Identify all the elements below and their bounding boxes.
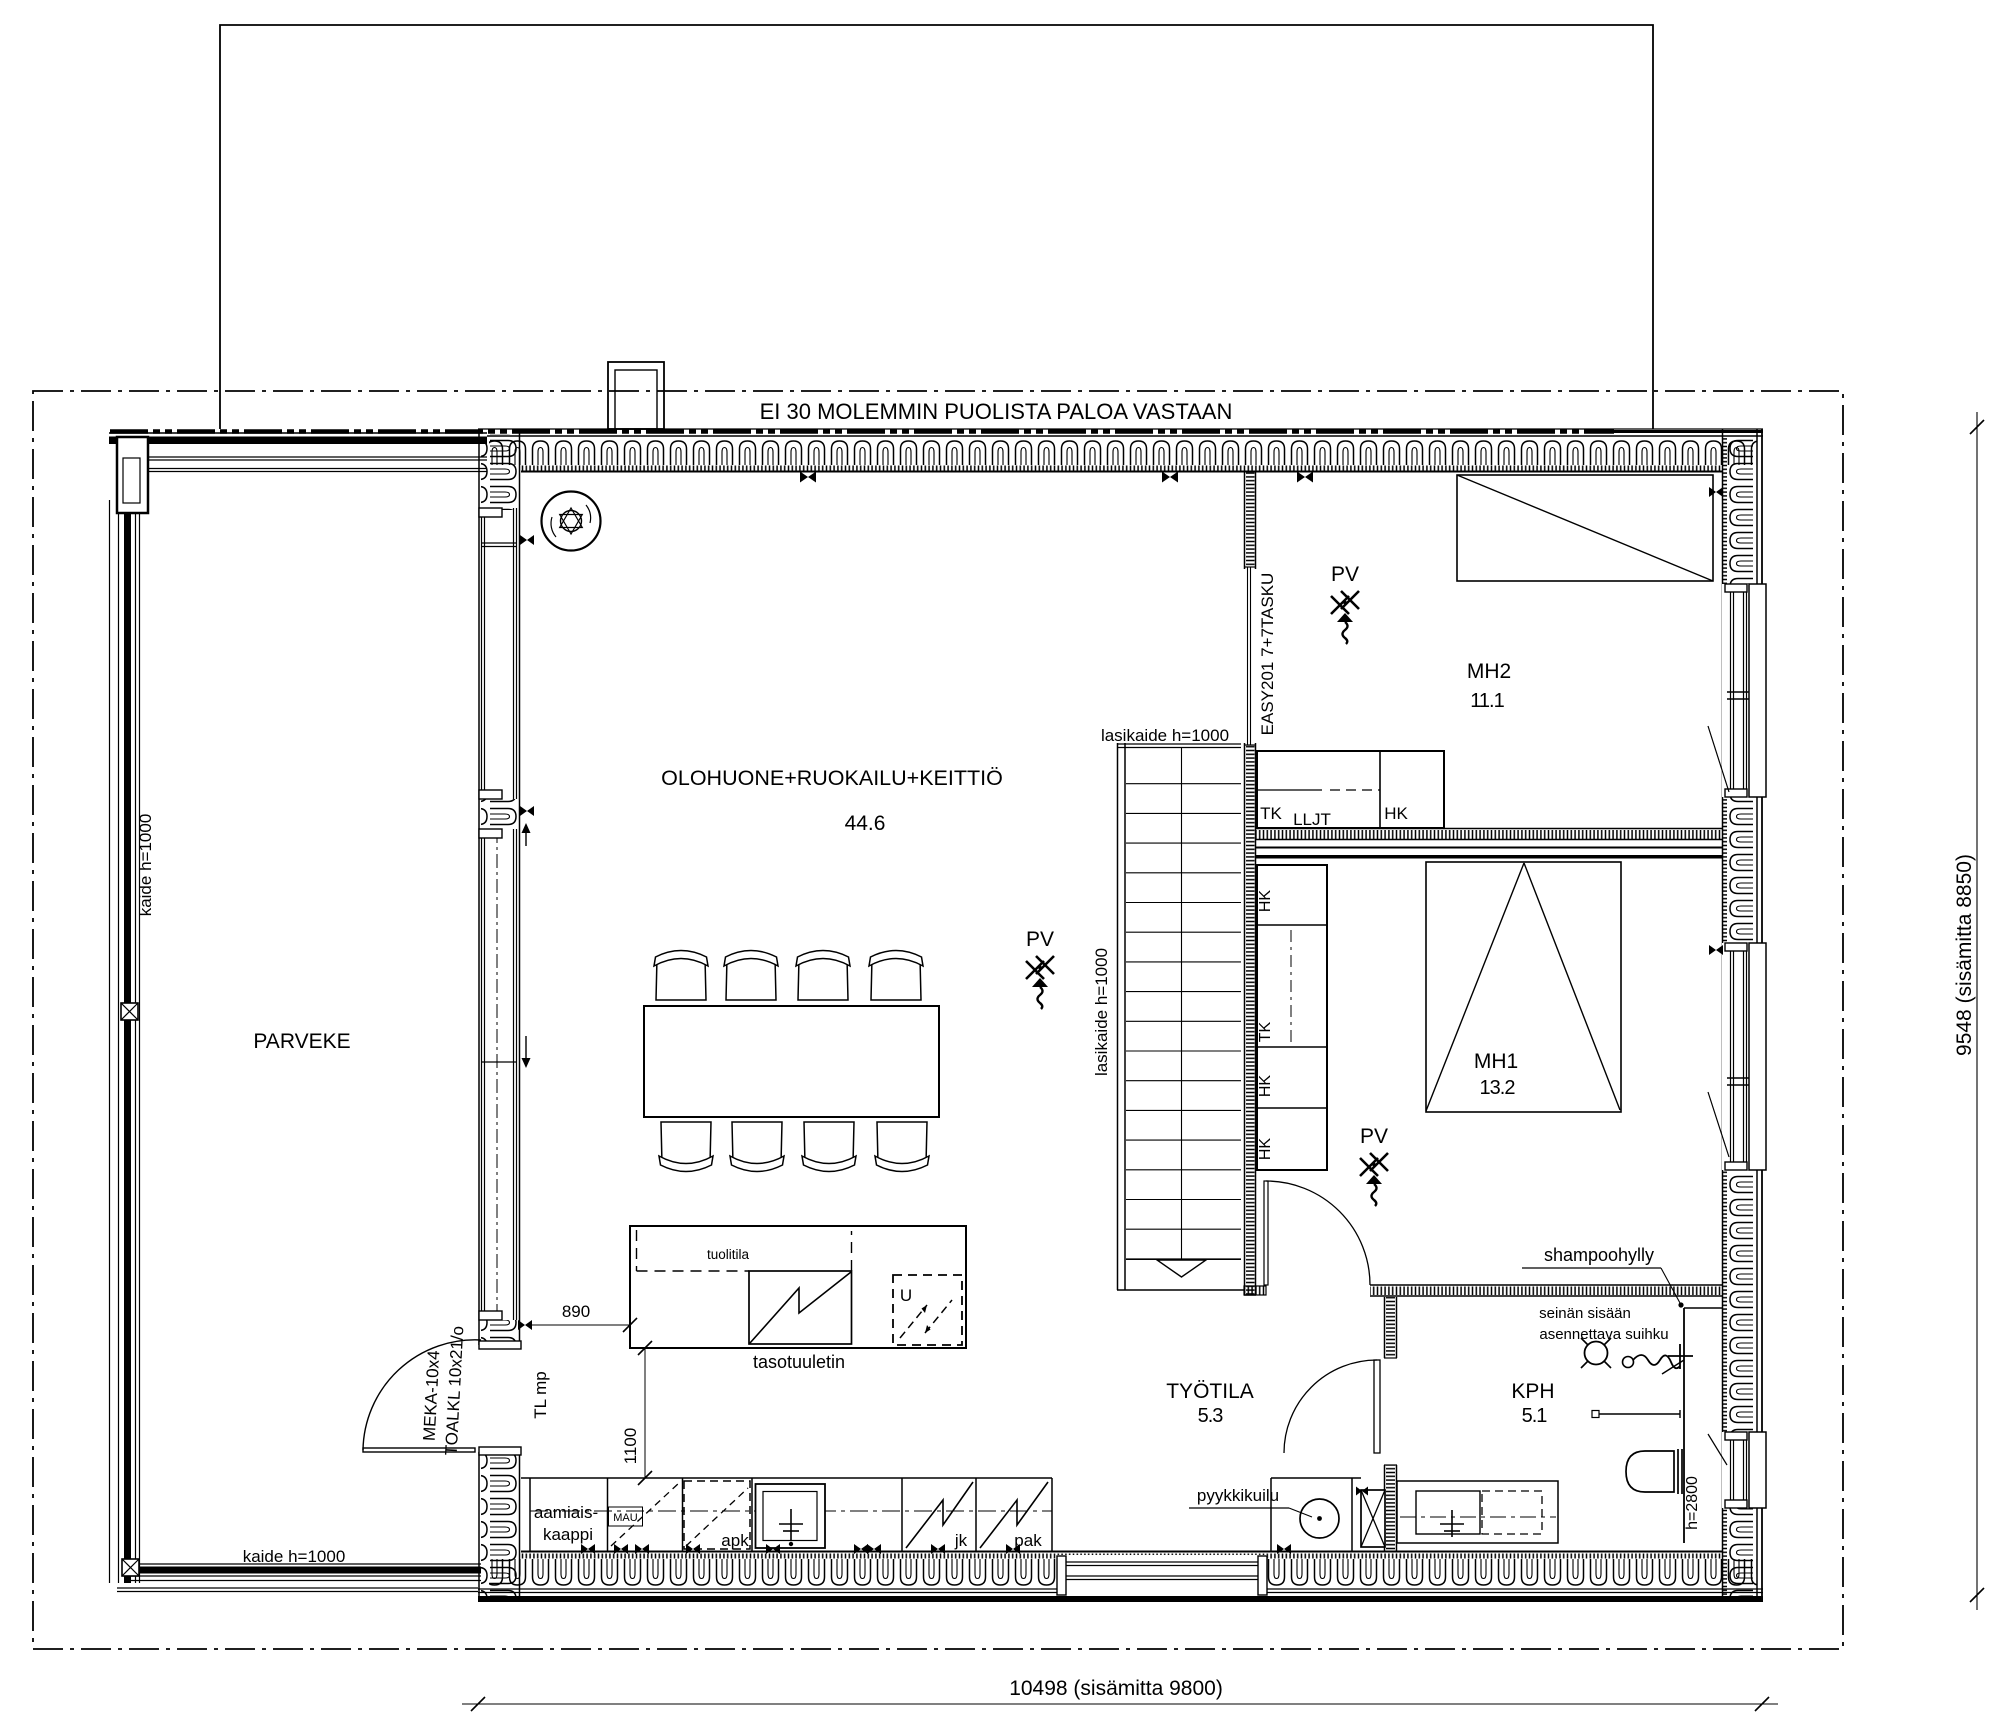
svg-text:U: U <box>900 1286 912 1305</box>
svg-text:shampoohylly: shampoohylly <box>1544 1245 1654 1265</box>
svg-text:asennettava suihku: asennettava suihku <box>1539 1326 1668 1343</box>
svg-text:TYÖTILA: TYÖTILA <box>1166 1380 1254 1403</box>
svg-text:HK: HK <box>1384 804 1408 823</box>
svg-text:KPH: KPH <box>1511 1380 1554 1403</box>
svg-text:11.1: 11.1 <box>1470 690 1504 712</box>
svg-text:LLJT: LLJT <box>1293 810 1331 829</box>
svg-text:HK: HK <box>1257 1075 1274 1098</box>
svg-text:OLOHUONE+RUOKAILU+KEITTIÖ: OLOHUONE+RUOKAILU+KEITTIÖ <box>661 766 1003 790</box>
svg-text:PV: PV <box>1360 1125 1388 1148</box>
svg-text:TK: TK <box>1257 1021 1274 1042</box>
svg-text:EASY201 7+7TASKU: EASY201 7+7TASKU <box>1258 573 1277 736</box>
svg-text:44.6: 44.6 <box>845 812 886 835</box>
svg-text:10498 (sisämitta 9800): 10498 (sisämitta 9800) <box>1009 1677 1223 1700</box>
svg-text:kaide h=1000: kaide h=1000 <box>136 814 155 917</box>
svg-text:PARVEKE: PARVEKE <box>253 1030 350 1053</box>
svg-text:TL mp: TL mp <box>531 1371 550 1419</box>
svg-text:h=2800: h=2800 <box>1684 1476 1701 1530</box>
svg-text:1100: 1100 <box>621 1428 640 1465</box>
svg-text:5.3: 5.3 <box>1198 1405 1224 1427</box>
svg-text:jk: jk <box>954 1531 968 1550</box>
svg-text:kaide h=1000: kaide h=1000 <box>243 1547 346 1566</box>
svg-text:13.2: 13.2 <box>1480 1077 1516 1099</box>
svg-text:pyykkikuilu: pyykkikuilu <box>1197 1486 1279 1505</box>
svg-text:lasikaide h=1000: lasikaide h=1000 <box>1092 948 1111 1076</box>
svg-text:aamiais-: aamiais- <box>534 1503 598 1522</box>
svg-text:EI 30 MOLEMMIN PUOLISTA PALOA: EI 30 MOLEMMIN PUOLISTA PALOA VASTAAN <box>760 399 1233 424</box>
svg-text:MH1: MH1 <box>1474 1050 1518 1073</box>
svg-text:9548 (sisämitta 8850): 9548 (sisämitta 8850) <box>1953 854 1976 1056</box>
svg-text:PV: PV <box>1026 928 1054 951</box>
svg-text:PV: PV <box>1331 563 1359 586</box>
svg-text:apk: apk <box>721 1531 749 1550</box>
svg-text:kaappi: kaappi <box>543 1525 593 1544</box>
svg-text:seinän sisään: seinän sisään <box>1539 1305 1631 1322</box>
svg-text:MAU: MAU <box>613 1512 638 1524</box>
svg-text:HK: HK <box>1257 1138 1274 1161</box>
svg-text:HK: HK <box>1257 890 1274 913</box>
svg-text:lasikaide h=1000: lasikaide h=1000 <box>1101 726 1229 745</box>
svg-text:TK: TK <box>1260 804 1282 823</box>
svg-text:890: 890 <box>562 1302 590 1321</box>
svg-text:tuolitila: tuolitila <box>707 1247 750 1262</box>
svg-text:MH2: MH2 <box>1467 660 1511 683</box>
svg-text:tasotuuletin: tasotuuletin <box>753 1352 845 1372</box>
svg-text:5.1: 5.1 <box>1522 1405 1548 1427</box>
